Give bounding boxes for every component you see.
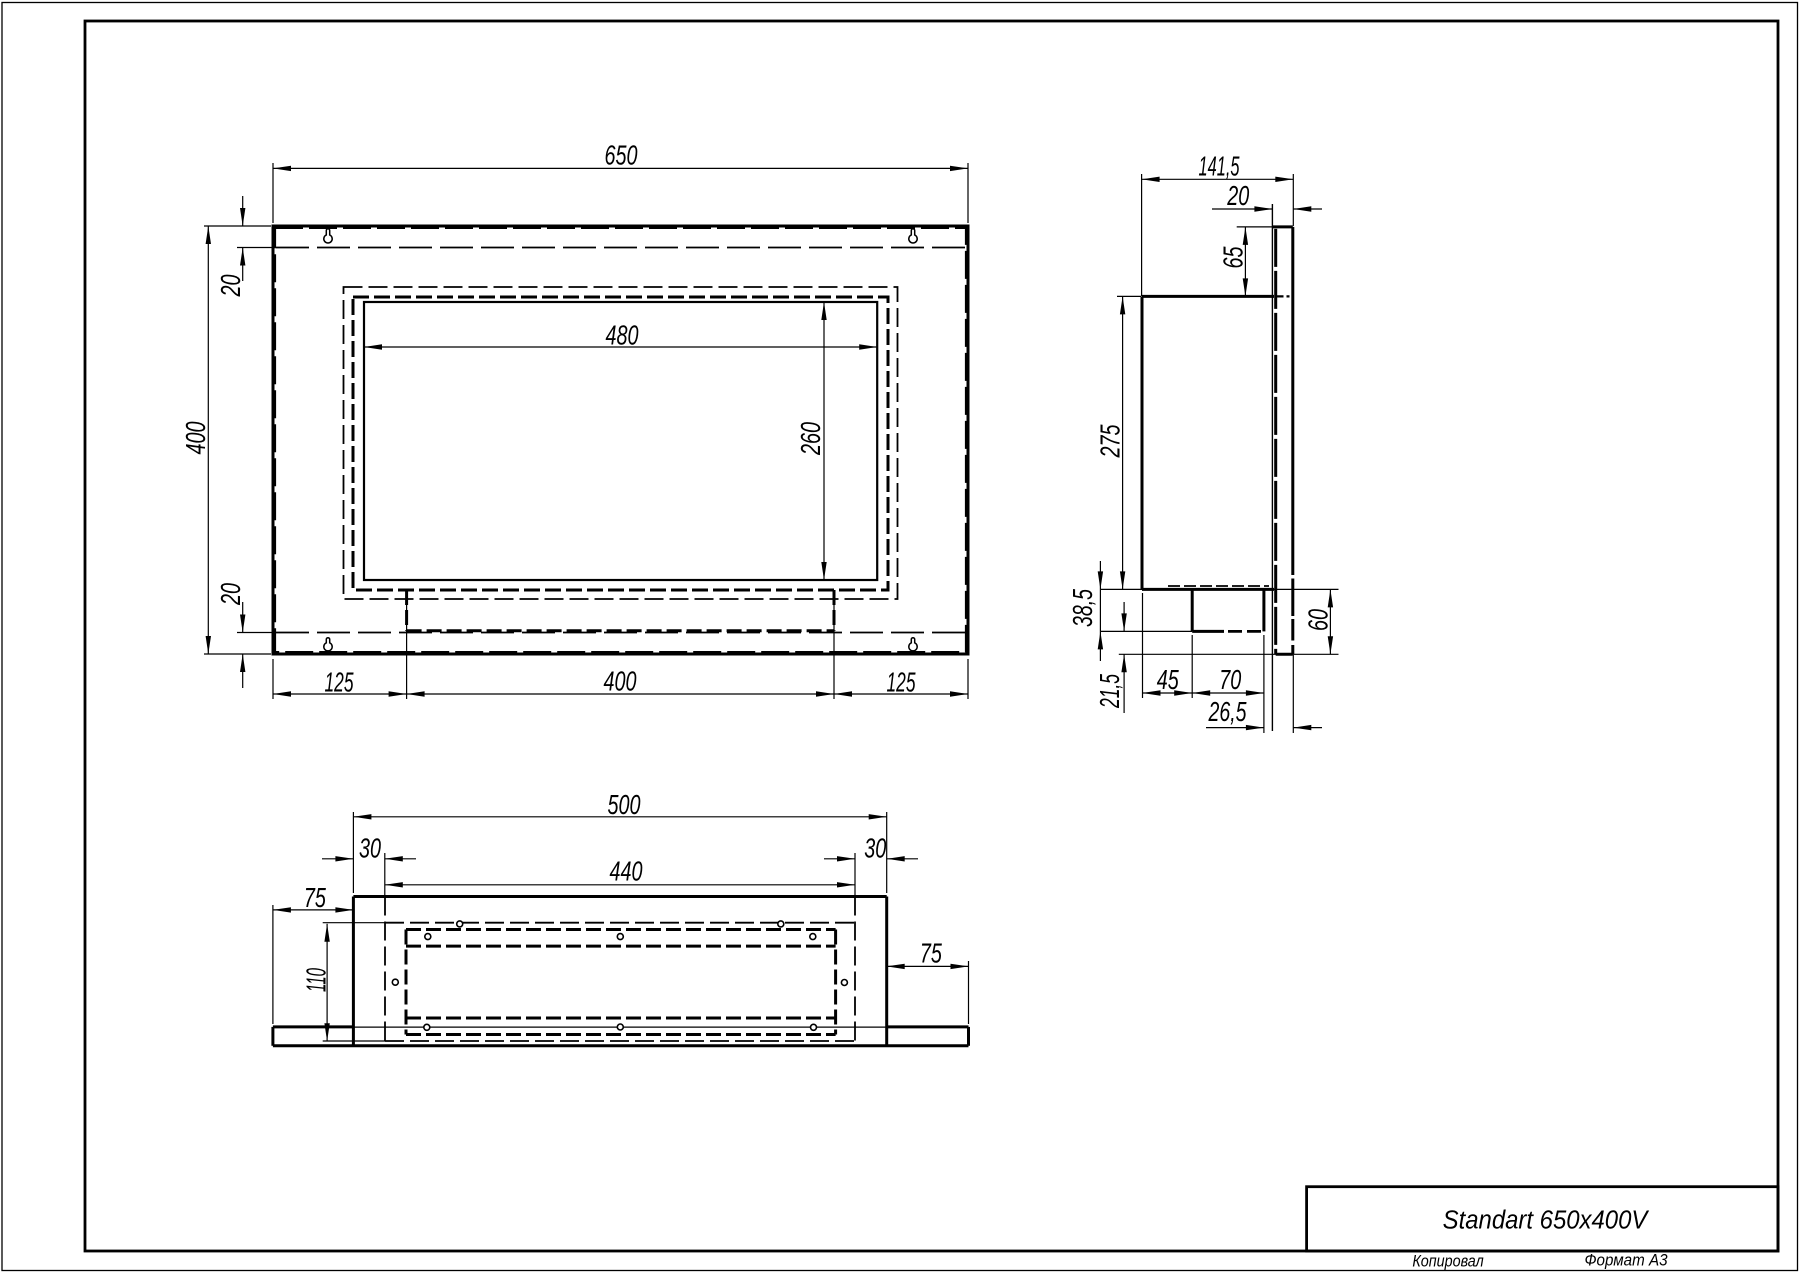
svg-text:21,5: 21,5 xyxy=(1094,673,1125,709)
svg-text:Копировал: Копировал xyxy=(1412,1252,1484,1270)
svg-text:440: 440 xyxy=(609,856,642,887)
svg-text:70: 70 xyxy=(1219,665,1241,696)
svg-text:400: 400 xyxy=(181,421,212,454)
svg-text:500: 500 xyxy=(607,790,640,821)
svg-text:Формат А3: Формат А3 xyxy=(1584,1252,1667,1270)
svg-text:75: 75 xyxy=(920,938,942,969)
svg-text:125: 125 xyxy=(324,666,354,697)
svg-text:20: 20 xyxy=(216,274,247,297)
svg-text:26,5: 26,5 xyxy=(1208,697,1247,728)
svg-text:275: 275 xyxy=(1095,424,1126,458)
svg-text:30: 30 xyxy=(359,833,381,864)
svg-text:400: 400 xyxy=(603,666,636,697)
svg-text:650: 650 xyxy=(604,140,637,171)
svg-text:Standart 650x400V: Standart 650x400V xyxy=(1443,1205,1650,1234)
svg-text:38,5: 38,5 xyxy=(1068,589,1099,627)
svg-text:75: 75 xyxy=(304,883,326,914)
svg-text:480: 480 xyxy=(605,320,638,351)
svg-text:260: 260 xyxy=(796,422,827,456)
svg-text:30: 30 xyxy=(864,833,886,864)
svg-text:125: 125 xyxy=(886,666,916,697)
svg-text:110: 110 xyxy=(301,968,332,992)
svg-text:45: 45 xyxy=(1157,665,1179,696)
svg-text:141,5: 141,5 xyxy=(1198,150,1239,182)
svg-text:60: 60 xyxy=(1303,609,1334,631)
svg-text:65: 65 xyxy=(1218,246,1249,268)
svg-text:20: 20 xyxy=(1226,181,1249,212)
svg-text:20: 20 xyxy=(216,583,247,606)
